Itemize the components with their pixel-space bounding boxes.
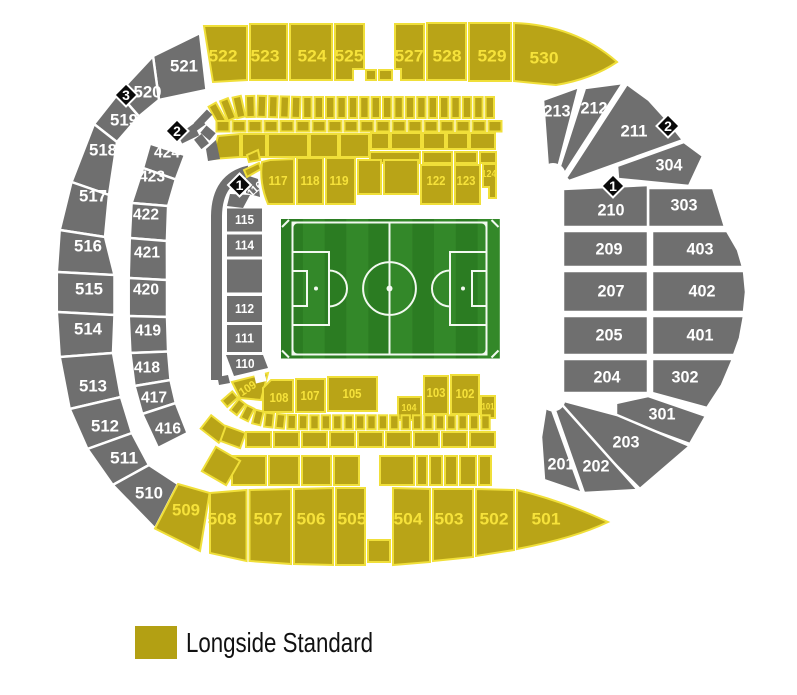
svg-text:123: 123	[457, 174, 476, 188]
svg-text:102: 102	[456, 387, 475, 401]
svg-text:402: 402	[689, 282, 716, 301]
svg-text:110: 110	[236, 357, 255, 371]
svg-text:114: 114	[235, 239, 254, 253]
svg-text:107: 107	[301, 389, 320, 403]
svg-text:103: 103	[427, 386, 446, 400]
svg-text:522: 522	[209, 47, 238, 66]
svg-text:201: 201	[548, 455, 575, 474]
svg-text:517: 517	[79, 187, 107, 206]
svg-text:105: 105	[343, 387, 362, 401]
svg-text:501: 501	[532, 510, 561, 529]
svg-text:502: 502	[480, 510, 509, 529]
svg-text:528: 528	[433, 47, 462, 66]
svg-text:420: 420	[133, 282, 159, 299]
svg-text:424: 424	[154, 145, 180, 162]
svg-text:207: 207	[598, 282, 625, 301]
svg-text:508: 508	[208, 510, 237, 529]
svg-text:514: 514	[74, 320, 103, 339]
svg-text:523: 523	[251, 47, 280, 66]
svg-text:1: 1	[236, 177, 244, 193]
svg-text:520: 520	[134, 83, 162, 102]
svg-text:124: 124	[482, 168, 497, 180]
svg-text:525: 525	[335, 47, 364, 66]
svg-text:505: 505	[338, 510, 367, 529]
svg-text:211: 211	[621, 122, 648, 141]
svg-text:418: 418	[134, 360, 160, 377]
svg-text:510: 510	[135, 484, 163, 503]
svg-text:521: 521	[170, 57, 198, 76]
svg-text:515: 515	[75, 280, 103, 299]
svg-text:209: 209	[596, 240, 623, 259]
svg-text:111: 111	[235, 332, 254, 346]
svg-text:512: 512	[91, 417, 119, 436]
svg-text:205: 205	[596, 326, 623, 345]
svg-text:204: 204	[594, 368, 622, 387]
svg-text:403: 403	[687, 240, 714, 259]
svg-text:417: 417	[141, 390, 167, 407]
svg-text:2: 2	[664, 118, 672, 134]
svg-text:202: 202	[583, 457, 610, 476]
svg-text:507: 507	[254, 510, 283, 529]
svg-text:509: 509	[172, 501, 200, 520]
svg-text:3: 3	[122, 87, 130, 103]
svg-text:401: 401	[687, 326, 714, 345]
svg-text:419: 419	[135, 323, 161, 340]
svg-text:511: 511	[110, 449, 138, 468]
svg-text:519: 519	[110, 111, 138, 130]
svg-text:203: 203	[613, 433, 640, 452]
svg-text:213: 213	[544, 102, 571, 121]
svg-text:112: 112	[235, 302, 254, 316]
svg-text:524: 524	[298, 47, 328, 66]
svg-text:101: 101	[482, 402, 496, 413]
svg-text:212: 212	[581, 99, 608, 118]
svg-text:527: 527	[395, 47, 424, 66]
svg-text:423: 423	[139, 169, 165, 186]
svg-text:504: 504	[394, 510, 424, 529]
svg-text:2: 2	[173, 123, 181, 139]
svg-text:301: 301	[649, 405, 676, 424]
svg-text:302: 302	[672, 368, 699, 387]
svg-text:117: 117	[269, 174, 288, 188]
svg-text:1: 1	[609, 178, 617, 194]
svg-text:503: 503	[435, 510, 464, 529]
svg-text:529: 529	[478, 47, 507, 66]
svg-text:Longside Standard: Longside Standard	[186, 627, 373, 658]
svg-text:518: 518	[89, 141, 117, 160]
svg-text:416: 416	[155, 421, 181, 438]
svg-text:122: 122	[427, 174, 446, 188]
svg-text:210: 210	[598, 201, 625, 220]
svg-text:303: 303	[671, 196, 698, 215]
svg-text:506: 506	[297, 510, 326, 529]
svg-text:513: 513	[79, 377, 107, 396]
svg-text:421: 421	[134, 245, 160, 262]
svg-text:104: 104	[402, 402, 417, 414]
svg-text:119: 119	[330, 174, 349, 188]
svg-text:530: 530	[530, 49, 559, 68]
svg-text:118: 118	[301, 174, 320, 188]
svg-text:115: 115	[235, 213, 254, 227]
svg-text:422: 422	[133, 207, 159, 224]
svg-text:304: 304	[656, 156, 684, 175]
svg-text:516: 516	[74, 237, 102, 256]
svg-text:108: 108	[270, 391, 289, 405]
